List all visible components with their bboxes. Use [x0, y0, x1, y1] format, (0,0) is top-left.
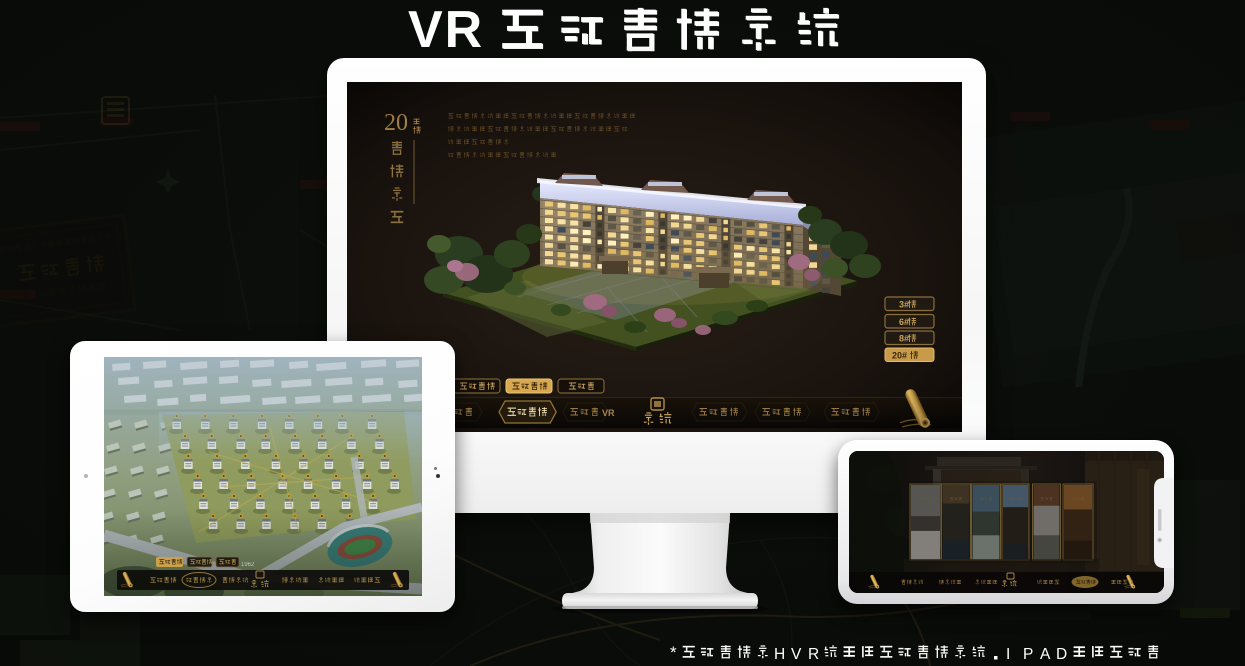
svg-text:A: A [1040, 646, 1051, 663]
svg-text:D: D [1056, 646, 1067, 663]
svg-text:*: * [670, 643, 677, 662]
svg-text:I: I [1006, 646, 1010, 663]
svg-text:VR: VR [408, 1, 484, 58]
svg-text:R: R [808, 646, 819, 663]
svg-text:V: V [791, 646, 802, 663]
svg-text:H: H [774, 646, 785, 663]
svg-text:P: P [1023, 646, 1033, 663]
